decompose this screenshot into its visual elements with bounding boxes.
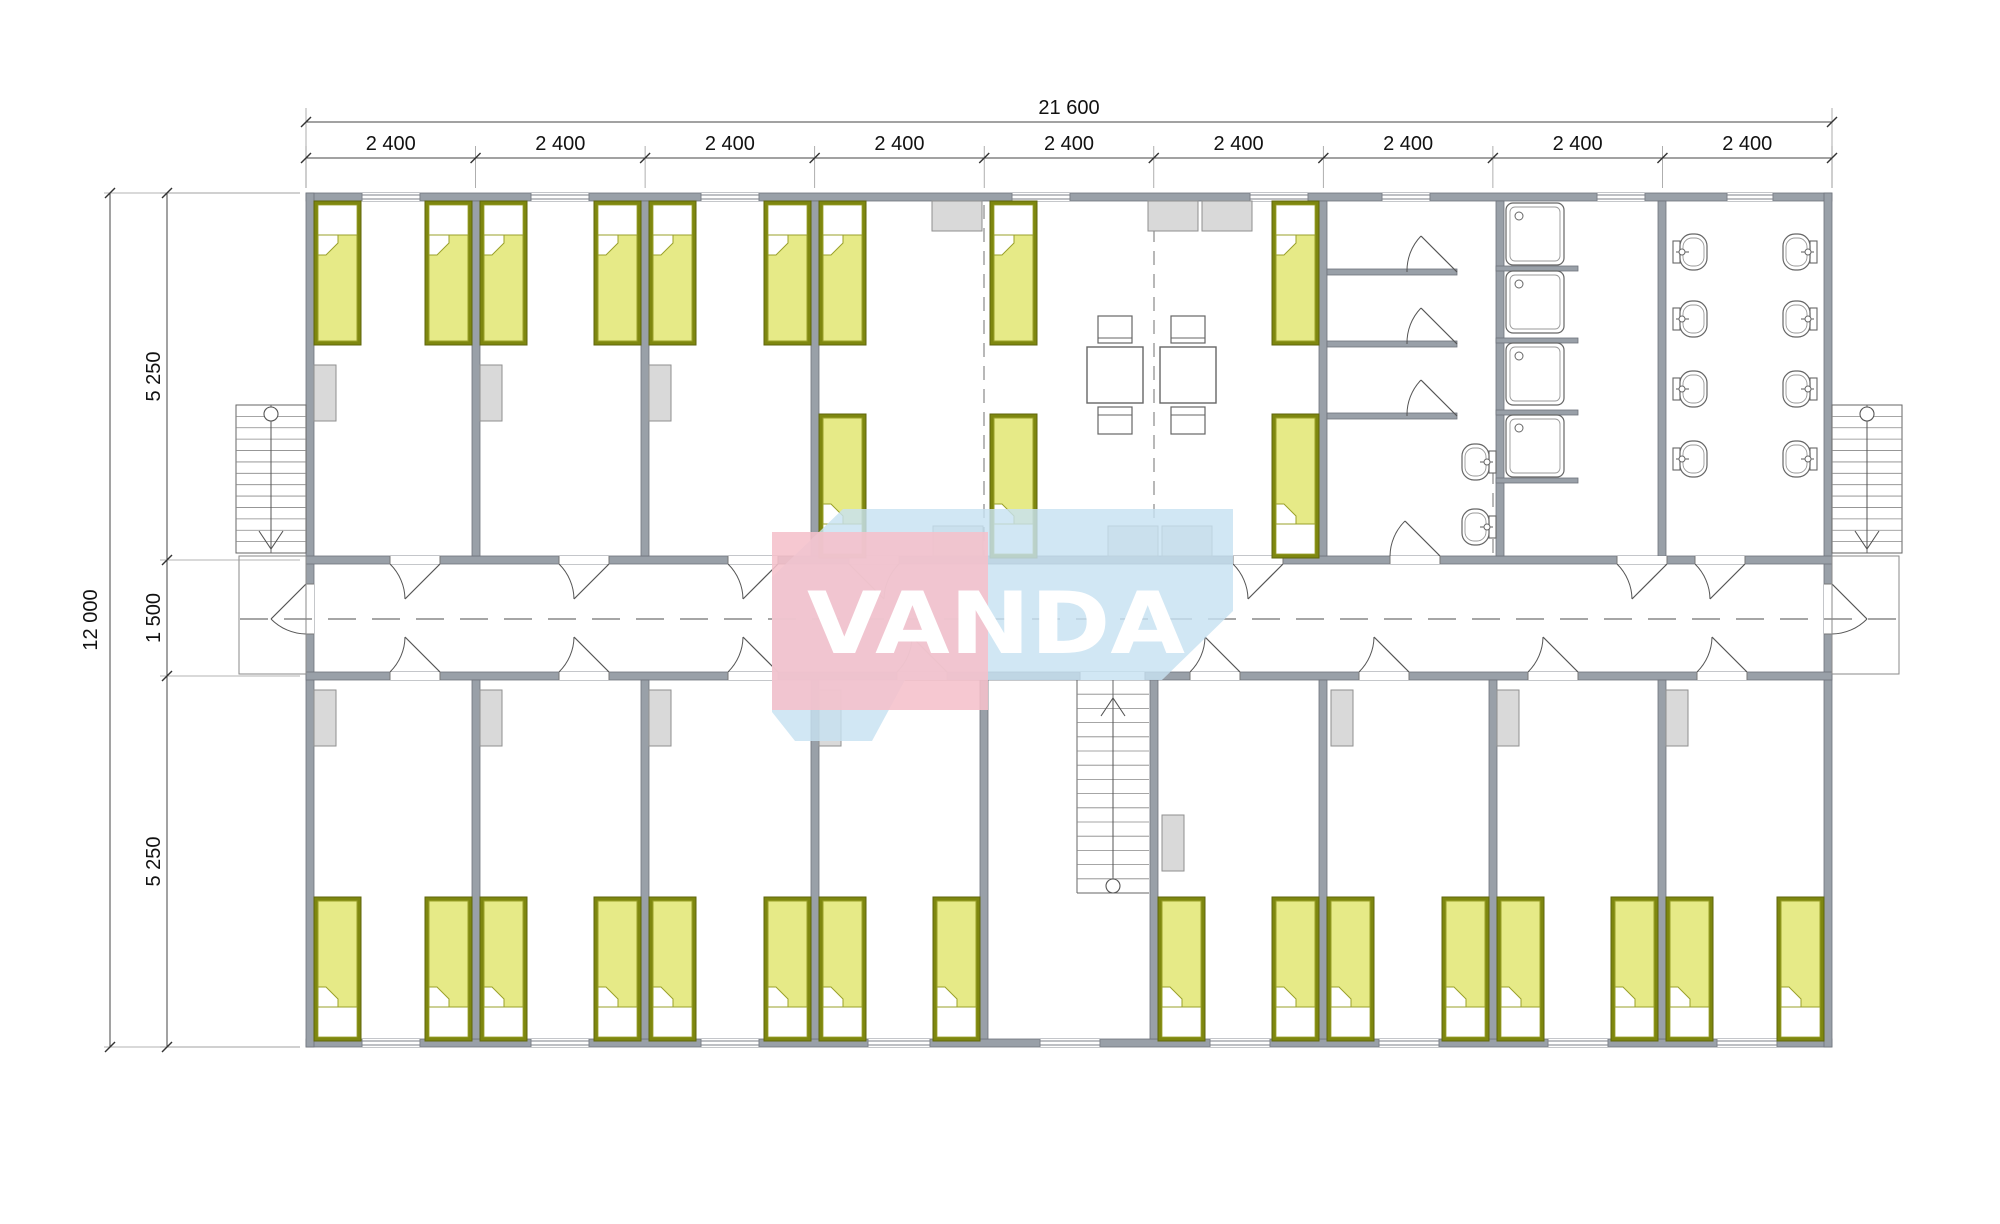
wardrobe — [480, 365, 502, 421]
rect — [701, 193, 759, 201]
door-swing-arc — [1528, 637, 1543, 672]
dimension-total-height: 12 000 — [80, 589, 102, 650]
wall-partition-upper — [641, 201, 649, 556]
dimension-label-bay: 2 400 — [1722, 133, 1772, 155]
rect — [1012, 193, 1070, 201]
rect — [1597, 193, 1645, 201]
wc-cubicle-door-leaf — [1421, 236, 1457, 272]
door-swing-arc — [1695, 564, 1710, 599]
wall-partition-lower — [1319, 680, 1327, 1039]
door-swing-arc — [1390, 521, 1405, 556]
dimension-label-bay: 2 400 — [705, 133, 755, 155]
chair — [1171, 407, 1205, 434]
shower-tray — [1506, 343, 1564, 405]
door-leaf — [1543, 637, 1578, 672]
rect — [1727, 193, 1773, 201]
toilet-tap-valve — [1805, 249, 1811, 255]
wall-partition-lower — [1658, 680, 1666, 1039]
rect — [1210, 1039, 1270, 1047]
dimension-label-bay: 2 400 — [1553, 133, 1603, 155]
wardrobe — [314, 365, 336, 421]
watermark-text: VANDA — [807, 574, 1185, 674]
door-leaf — [405, 564, 440, 599]
wall-partition-lower — [1150, 680, 1158, 1039]
toilet-tap-valve — [1805, 456, 1811, 462]
wardrobe — [1162, 815, 1184, 871]
toilet-tap-valve — [1805, 386, 1811, 392]
dimension-total-width: 21 600 — [1038, 97, 1099, 119]
dimension-label-bay: 2 400 — [366, 133, 416, 155]
wall-partition-lower — [641, 680, 649, 1039]
chair — [1098, 316, 1132, 343]
dimension-label-bay: 2 400 — [1214, 133, 1264, 155]
dimension-label-segment: 1 500 — [143, 593, 165, 643]
door-swing-arc — [559, 637, 574, 672]
rect — [559, 556, 609, 564]
door-swing-arc — [728, 564, 743, 599]
dimension-label-bay: 2 400 — [1044, 133, 1094, 155]
entrance-door-arc — [1832, 619, 1867, 634]
table — [1160, 347, 1216, 403]
rect — [531, 193, 589, 201]
entrance-door-leaf — [1832, 584, 1867, 619]
door-swing-arc — [1233, 564, 1248, 599]
shower-partition-stub — [1496, 478, 1578, 483]
watermark: VANDA — [772, 509, 1233, 741]
entrance-door-arc — [271, 619, 306, 634]
door-leaf — [1248, 564, 1283, 599]
rect — [306, 584, 314, 634]
toilet-tap-valve — [1805, 316, 1811, 322]
toilet-tap-valve — [1679, 249, 1685, 255]
rect — [701, 1039, 759, 1047]
wardrobe — [480, 690, 502, 746]
shower-tray — [1506, 271, 1564, 333]
rect — [728, 556, 778, 564]
rect — [362, 1039, 420, 1047]
door-swing-arc — [390, 564, 405, 599]
dimension-label-bay: 2 400 — [535, 133, 585, 155]
wc-cubicle-door-arc — [1407, 308, 1421, 344]
wall-partition-lower — [980, 680, 988, 1039]
rect — [1548, 1039, 1608, 1047]
door-swing-arc — [1697, 637, 1712, 672]
locker — [1148, 201, 1198, 231]
wall-partition-upper — [472, 201, 480, 556]
washbasin-tap-valve — [1484, 459, 1490, 465]
door-leaf — [1205, 637, 1240, 672]
wardrobe — [1497, 690, 1519, 746]
wc-cubicle-partition — [1327, 269, 1457, 275]
rect — [531, 1039, 589, 1047]
rect — [390, 556, 440, 564]
wardrobe — [649, 690, 671, 746]
shower-partition-stub — [1496, 338, 1578, 343]
wc-cubicle-door-leaf — [1421, 308, 1457, 344]
door-leaf — [1374, 637, 1409, 672]
door-swing-arc — [1359, 637, 1374, 672]
door-swing-arc — [728, 637, 743, 672]
locker — [1202, 201, 1252, 231]
rect — [559, 672, 609, 680]
table — [1087, 347, 1143, 403]
door-swing-arc — [1617, 564, 1632, 599]
door-leaf — [574, 564, 609, 599]
wall-partition-upper — [1496, 201, 1504, 556]
entrance-door-leaf — [271, 584, 306, 619]
door-leaf — [405, 637, 440, 672]
shower-partition-stub — [1496, 266, 1578, 271]
dimension-label-segment: 5 250 — [143, 836, 165, 886]
floor-plan-svg: 2 4002 4002 4002 4002 4002 4002 4002 400… — [0, 0, 2000, 1219]
floor-plan: 2 4002 4002 4002 4002 4002 4002 4002 400… — [0, 0, 2000, 1219]
rect — [868, 1039, 930, 1047]
wc-cubicle-door-arc — [1407, 380, 1421, 416]
rect — [1695, 556, 1745, 564]
rect — [390, 672, 440, 680]
dimension-label-segment: 5 250 — [143, 351, 165, 401]
rect — [1617, 556, 1667, 564]
rect — [1250, 193, 1308, 201]
rect — [1359, 672, 1409, 680]
stair-start-circle — [1106, 879, 1120, 893]
wc-cubicle-door-arc — [1407, 236, 1421, 272]
toilet-tap-valve — [1679, 386, 1685, 392]
dimension-label-bay: 2 400 — [874, 133, 924, 155]
door-leaf — [1405, 521, 1440, 556]
rect — [362, 193, 420, 201]
wardrobe — [649, 365, 671, 421]
wardrobe — [314, 690, 336, 746]
wc-cubicle-partition — [1327, 341, 1457, 347]
rect — [1040, 1039, 1100, 1047]
shower-tray — [1506, 203, 1564, 265]
dimension-label-bay: 2 400 — [1383, 133, 1433, 155]
rect — [728, 672, 778, 680]
door-swing-arc — [390, 637, 405, 672]
wardrobe — [1666, 690, 1688, 746]
shower-partition-stub — [1496, 410, 1578, 415]
chair — [1171, 316, 1205, 343]
rect — [1190, 672, 1240, 680]
shower-tray — [1506, 415, 1564, 477]
door-leaf — [1632, 564, 1667, 599]
rect — [1824, 584, 1832, 634]
stair-start-circle — [264, 407, 278, 421]
stair-start-circle — [1860, 407, 1874, 421]
wall-partition-upper — [1319, 201, 1327, 556]
wardrobe — [1331, 690, 1353, 746]
wall-partition-lower — [472, 680, 480, 1039]
door-leaf — [574, 637, 609, 672]
rect — [1528, 672, 1578, 680]
rect — [1717, 1039, 1777, 1047]
washbasin-tap-valve — [1484, 524, 1490, 530]
entrance-landing — [1832, 556, 1899, 674]
door-swing-arc — [559, 564, 574, 599]
wc-cubicle-partition — [1327, 413, 1457, 419]
toilet-tap-valve — [1679, 316, 1685, 322]
wall-partition-upper — [811, 201, 819, 556]
rect — [1390, 556, 1440, 564]
locker — [932, 201, 982, 231]
entrance-landing — [239, 556, 306, 674]
toilet-tap-valve — [1679, 456, 1685, 462]
rect — [1697, 672, 1747, 680]
wall-partition-upper — [1658, 201, 1666, 556]
door-leaf — [1710, 564, 1745, 599]
chair — [1098, 407, 1132, 434]
wall-partition-lower — [1489, 680, 1497, 1039]
rect — [1379, 1039, 1439, 1047]
wc-cubicle-door-leaf — [1421, 380, 1457, 416]
rect — [1382, 193, 1430, 201]
door-leaf — [1712, 637, 1747, 672]
